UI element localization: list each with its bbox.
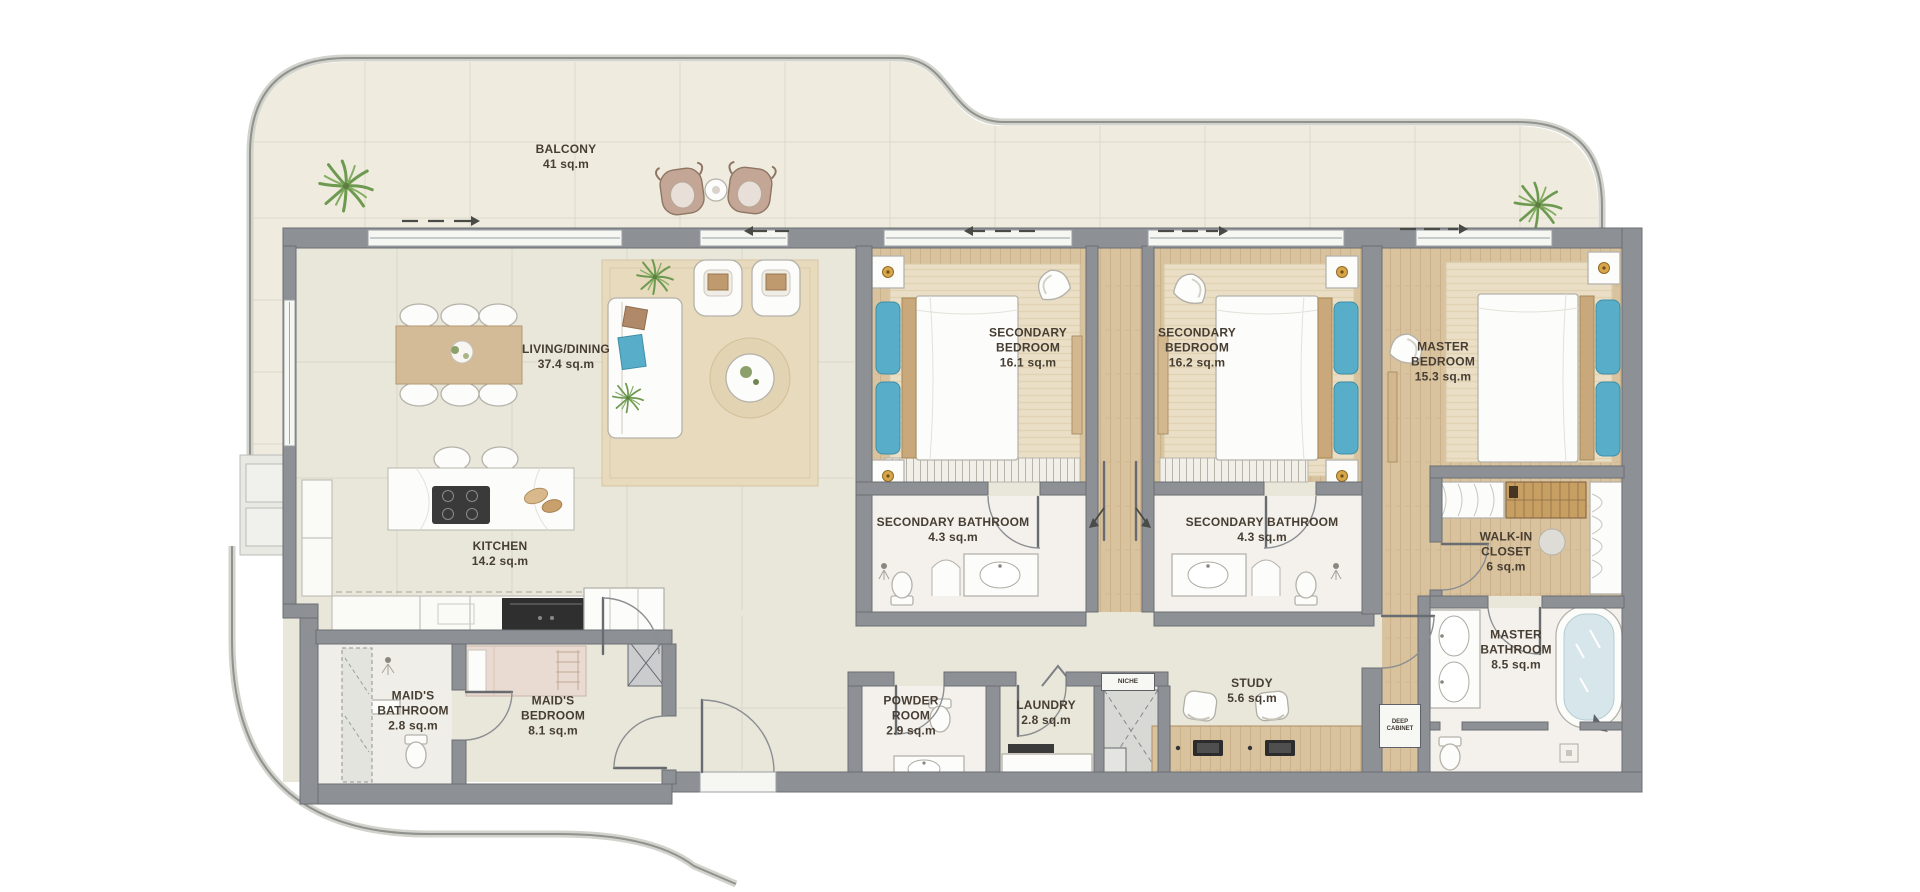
- washing-machine: [1008, 744, 1054, 753]
- room-label-secondary-bedroom-2: SECONDARY BEDROOM 16.2 sq.m: [1145, 326, 1249, 371]
- cooktop: [432, 486, 490, 524]
- shower-niche: [1252, 560, 1280, 596]
- oven: [502, 598, 590, 630]
- shower-icon: [1333, 563, 1339, 569]
- deep-cabinet-box: DEEP CABINET: [1379, 704, 1421, 748]
- pillow: [1596, 300, 1620, 374]
- maids-bed: [466, 646, 586, 696]
- room-label-study: STUDY 5.6 sq.m: [1210, 676, 1294, 706]
- niche-box: NICHE: [1101, 673, 1155, 691]
- secondary-bedroom-2-zone: [1158, 256, 1358, 492]
- room-name: SECONDARY BATHROOM: [1167, 515, 1357, 530]
- lamp-icon: [1337, 471, 1348, 482]
- pillow: [1334, 302, 1358, 374]
- toilet-icon: [1295, 572, 1317, 605]
- bathtub: [1556, 606, 1622, 732]
- secondary-bedroom-1-zone: [872, 256, 1082, 492]
- lamp-icon: [1599, 263, 1610, 274]
- room-label-master-bathroom: MASTER BATHROOM 8.5 sq.m: [1468, 628, 1564, 673]
- room-area: 16.2 sq.m: [1145, 356, 1249, 371]
- laptop-icon: [1265, 740, 1295, 756]
- room-area: 15.3 sq.m: [1395, 370, 1491, 385]
- toilet-icon: [891, 572, 913, 605]
- bed-bench: [1580, 296, 1594, 460]
- pillow: [876, 382, 900, 454]
- room-label-laundry: LAUNDRY 2.8 sq.m: [1004, 698, 1088, 728]
- room-area: 5.6 sq.m: [1210, 691, 1294, 706]
- room-name: BALCONY: [511, 142, 621, 157]
- room-name: LIVING/DINING: [481, 342, 651, 357]
- shower-niche: [932, 560, 960, 596]
- wardrobe: [1160, 458, 1308, 482]
- room-name: MASTER BATHROOM: [1468, 628, 1564, 658]
- shower-icon: [385, 657, 391, 663]
- entry-threshold: [700, 772, 776, 792]
- room-name: KITCHEN: [445, 539, 555, 554]
- floor-plan-drawing: [0, 0, 1920, 892]
- bed-bench: [902, 298, 916, 458]
- laptop-icon: [1193, 740, 1223, 756]
- armchair: [752, 260, 800, 316]
- room-area: 41 sq.m: [511, 157, 621, 172]
- room-name: POWDER ROOM: [873, 694, 949, 724]
- room-label-kitchen: KITCHEN 14.2 sq.m: [445, 539, 555, 569]
- room-label-secondary-bathroom-1: SECONDARY BATHROOM 4.3 sq.m: [858, 515, 1048, 545]
- room-label-maids-bathroom: MAID'S BATHROOM 2.8 sq.m: [367, 689, 459, 734]
- toilet-icon: [1439, 737, 1461, 770]
- room-label-balcony: BALCONY 41 sq.m: [511, 142, 621, 172]
- room-area: 2.8 sq.m: [1004, 713, 1088, 728]
- dresser: [1388, 372, 1397, 462]
- room-area: 4.3 sq.m: [1167, 530, 1357, 545]
- room-name: MAID'S BEDROOM: [511, 694, 595, 724]
- pillow: [876, 302, 900, 374]
- room-name: MAID'S BATHROOM: [367, 689, 459, 719]
- room-label-powder-room: POWDER ROOM 2.9 sq.m: [873, 694, 949, 739]
- room-label-living-dining: LIVING/DINING 37.4 sq.m: [481, 342, 651, 372]
- room-area: 2.8 sq.m: [367, 719, 459, 734]
- room-area: 14.2 sq.m: [445, 554, 555, 569]
- room-area: 4.3 sq.m: [858, 530, 1048, 545]
- room-label-secondary-bedroom-1: SECONDARY BEDROOM 16.1 sq.m: [976, 326, 1080, 371]
- floor-plan: BALCONY 41 sq.m LIVING/DINING 37.4 sq.m …: [0, 0, 1920, 892]
- pillow: [1596, 382, 1620, 456]
- pillow: [1334, 382, 1358, 454]
- wardrobe: [884, 458, 1080, 482]
- room-area: 16.1 sq.m: [976, 356, 1080, 371]
- room-area: 6 sq.m: [1469, 560, 1543, 575]
- toilet-icon: [405, 735, 427, 768]
- room-name: SECONDARY BEDROOM: [1145, 326, 1249, 356]
- room-name: SECONDARY BATHROOM: [858, 515, 1048, 530]
- armchair: [694, 260, 742, 316]
- room-label-secondary-bathroom-2: SECONDARY BATHROOM 4.3 sq.m: [1167, 515, 1357, 545]
- room-name: WALK-IN CLOSET: [1469, 530, 1543, 560]
- room-area: 37.4 sq.m: [481, 357, 651, 372]
- sofa-pillow-brown: [622, 306, 647, 330]
- bed-bench: [1318, 298, 1332, 458]
- room-name: LAUNDRY: [1004, 698, 1088, 713]
- room-label-walk-in-closet: WALK-IN CLOSET 6 sq.m: [1469, 530, 1543, 575]
- hanging-rail: [1590, 482, 1622, 594]
- laundry-shaft: [1104, 690, 1158, 772]
- room-area: 2.9 sq.m: [873, 724, 949, 739]
- shower-icon: [881, 563, 887, 569]
- room-name: SECONDARY BEDROOM: [976, 326, 1080, 356]
- room-label-maids-bedroom: MAID'S BEDROOM 8.1 sq.m: [511, 694, 595, 739]
- room-name: STUDY: [1210, 676, 1294, 691]
- room-name: MASTER BEDROOM: [1395, 340, 1491, 370]
- lamp-icon: [883, 267, 894, 278]
- coffee-table: [710, 338, 790, 418]
- lamp-icon: [883, 471, 894, 482]
- room-area: 8.5 sq.m: [1468, 658, 1564, 673]
- room-label-master-bedroom: MASTER BEDROOM 15.3 sq.m: [1395, 340, 1491, 385]
- lamp-icon: [1337, 267, 1348, 278]
- room-area: 8.1 sq.m: [511, 724, 595, 739]
- study-desk: [1152, 726, 1364, 772]
